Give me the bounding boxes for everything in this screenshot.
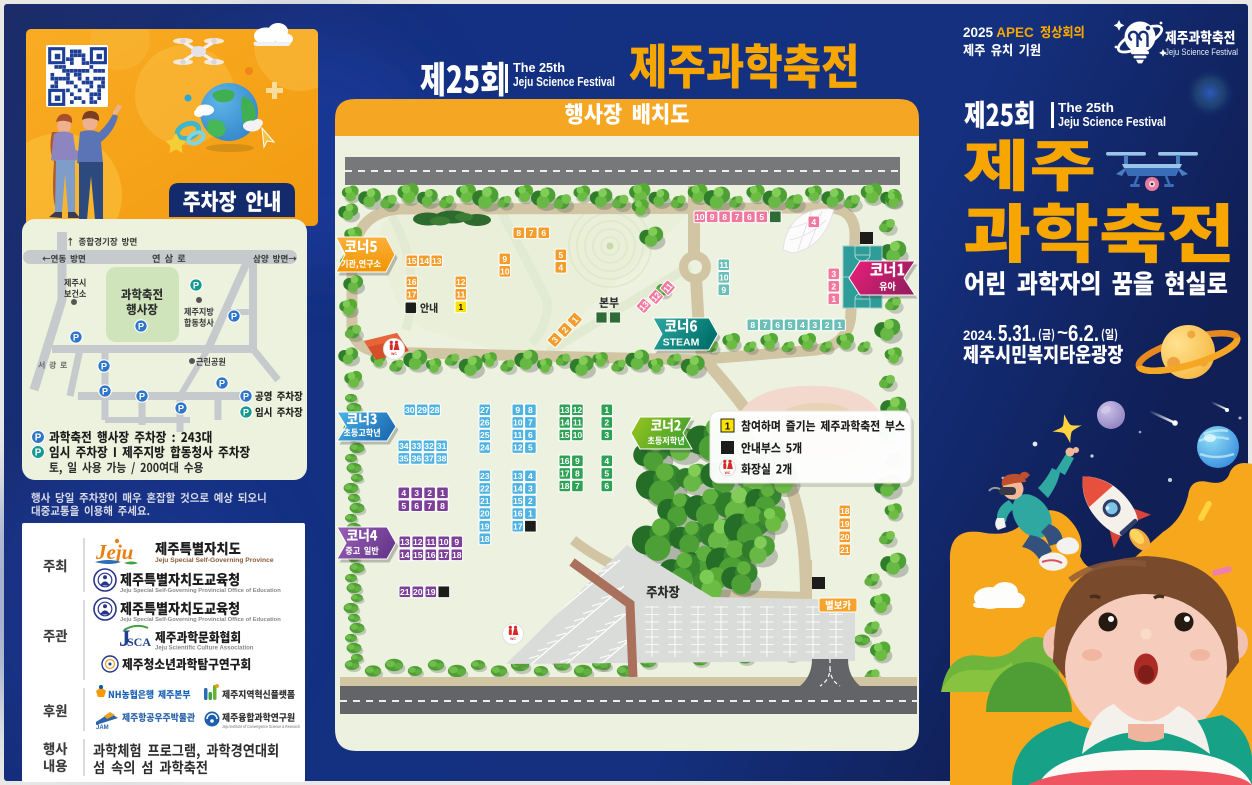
svg-text:P: P (102, 386, 108, 396)
svg-text:Jeju Special Self-Governing Pr: Jeju Special Self-Governing Province (155, 557, 274, 564)
svg-text:4: 4 (558, 262, 563, 272)
svg-text:1: 1 (528, 509, 533, 519)
svg-text:8: 8 (575, 469, 580, 479)
svg-text:P: P (35, 448, 42, 459)
svg-text:16: 16 (513, 509, 523, 519)
svg-text:8: 8 (440, 501, 445, 511)
svg-text:13: 13 (400, 537, 410, 547)
svg-text:3: 3 (831, 269, 836, 279)
svg-text:21: 21 (400, 587, 410, 597)
svg-text:9: 9 (454, 537, 459, 547)
svg-text:2025 APEC: 2025 APEC (963, 25, 1034, 40)
svg-text:3: 3 (812, 320, 817, 330)
svg-text:The 25th: The 25th (513, 61, 565, 75)
svg-text:18: 18 (840, 506, 850, 516)
svg-text:11: 11 (573, 418, 582, 428)
svg-text:27: 27 (480, 405, 490, 415)
svg-text:Jeju Science Festival: Jeju Science Festival (513, 75, 615, 89)
svg-text:5: 5 (401, 501, 406, 511)
svg-text:19: 19 (480, 521, 490, 531)
svg-text:P: P (219, 378, 225, 388)
svg-text:2: 2 (604, 418, 609, 428)
svg-text:11: 11 (513, 430, 522, 440)
svg-text:Jeju Special Self-Governing Pr: Jeju Special Self-Governing Provincial O… (120, 617, 281, 623)
svg-text:25: 25 (480, 430, 490, 440)
svg-text:7: 7 (427, 501, 432, 511)
svg-text:15: 15 (413, 550, 423, 560)
svg-text:14: 14 (420, 256, 430, 266)
svg-text:6.2.: 6.2. (1068, 320, 1099, 346)
svg-text:Jeju Science Festival: Jeju Science Festival (1165, 47, 1238, 57)
svg-text:34: 34 (399, 441, 409, 451)
svg-text:5: 5 (759, 212, 764, 222)
svg-text:6: 6 (528, 430, 533, 440)
svg-text:3: 3 (528, 484, 533, 494)
svg-text:P: P (73, 332, 79, 342)
svg-text:P: P (139, 391, 145, 401)
svg-text:19: 19 (840, 519, 850, 529)
svg-text:19: 19 (426, 587, 436, 597)
svg-text:17: 17 (513, 521, 523, 531)
svg-text:2: 2 (831, 281, 836, 291)
svg-text:15: 15 (513, 496, 523, 506)
svg-text:9: 9 (710, 212, 715, 222)
svg-text:2: 2 (528, 496, 533, 506)
svg-text:1: 1 (440, 488, 445, 498)
svg-text:9: 9 (721, 285, 726, 295)
svg-text:P: P (178, 403, 184, 413)
svg-text:12: 12 (513, 443, 523, 453)
svg-text:9: 9 (515, 405, 520, 415)
svg-text:13: 13 (560, 405, 570, 415)
svg-text:8: 8 (516, 228, 521, 238)
svg-text:7: 7 (763, 320, 768, 330)
svg-text:6: 6 (747, 212, 752, 222)
svg-text:Jeju Science Festival: Jeju Science Festival (1058, 114, 1166, 129)
svg-text:24: 24 (480, 443, 490, 453)
svg-text:20: 20 (480, 509, 490, 519)
svg-text:5: 5 (604, 469, 609, 479)
svg-text:5.31.: 5.31. (998, 320, 1036, 346)
svg-text:21: 21 (840, 545, 850, 555)
svg-text:7: 7 (735, 212, 740, 222)
svg-text:4: 4 (811, 217, 816, 227)
svg-text:9: 9 (502, 254, 507, 264)
svg-text:32: 32 (424, 441, 434, 451)
svg-text:8: 8 (528, 405, 533, 415)
svg-text:14: 14 (400, 550, 410, 560)
svg-text:18: 18 (480, 534, 490, 544)
svg-text:2: 2 (825, 320, 830, 330)
svg-text:18: 18 (452, 550, 462, 560)
svg-text:1: 1 (604, 405, 609, 415)
svg-text:11: 11 (719, 260, 728, 270)
svg-text:23: 23 (480, 471, 490, 481)
svg-text:1: 1 (725, 422, 731, 433)
svg-text:WC: WC (510, 637, 516, 641)
svg-text:1: 1 (837, 320, 842, 330)
svg-text:5: 5 (528, 443, 533, 453)
svg-text:1: 1 (831, 294, 836, 304)
svg-text:11: 11 (456, 289, 465, 299)
svg-text:3: 3 (414, 488, 419, 498)
svg-text:15: 15 (407, 256, 417, 266)
svg-text:10: 10 (719, 272, 729, 282)
svg-text:35: 35 (399, 454, 409, 464)
svg-text:9: 9 (575, 456, 580, 466)
svg-text:P: P (138, 321, 144, 331)
svg-text:Jeju Scientific Culture Associ: Jeju Scientific Culture Association (155, 646, 254, 652)
svg-text:17: 17 (560, 469, 570, 479)
svg-text:10: 10 (513, 418, 523, 428)
svg-text:14: 14 (513, 484, 523, 494)
svg-text:6: 6 (775, 320, 780, 330)
svg-text:1: 1 (458, 302, 463, 312)
svg-text:7: 7 (529, 228, 534, 238)
svg-text:13: 13 (513, 471, 523, 481)
svg-text:WC: WC (391, 352, 397, 356)
svg-text:WC: WC (725, 471, 731, 475)
svg-text:3: 3 (604, 430, 609, 440)
svg-text:10: 10 (573, 430, 583, 440)
svg-text:STEAM: STEAM (663, 337, 700, 349)
svg-text:15: 15 (560, 430, 570, 440)
svg-text:11: 11 (426, 537, 435, 547)
svg-text:5: 5 (558, 250, 563, 260)
svg-text:13: 13 (432, 256, 442, 266)
svg-text:17: 17 (439, 550, 449, 560)
svg-text:20: 20 (413, 587, 423, 597)
svg-text:6: 6 (604, 481, 609, 491)
svg-text:~: ~ (1057, 323, 1068, 344)
svg-text:12: 12 (456, 277, 466, 287)
svg-text:The 25th: The 25th (1058, 100, 1114, 115)
svg-text:12: 12 (413, 537, 423, 547)
svg-text:7: 7 (528, 418, 533, 428)
svg-text:6: 6 (541, 228, 546, 238)
svg-text:22: 22 (480, 484, 490, 494)
svg-text:30: 30 (405, 405, 415, 415)
svg-text:29: 29 (417, 405, 427, 415)
svg-text:16: 16 (426, 550, 436, 560)
svg-text:16: 16 (560, 456, 570, 466)
svg-text:31: 31 (437, 441, 447, 451)
svg-text:4: 4 (800, 320, 805, 330)
svg-text:37: 37 (424, 454, 434, 464)
svg-text:5: 5 (788, 320, 793, 330)
svg-text:17: 17 (407, 289, 417, 299)
svg-text:7: 7 (575, 481, 580, 491)
svg-text:10: 10 (439, 537, 449, 547)
svg-text:P: P (101, 361, 107, 371)
svg-text:8: 8 (750, 320, 755, 330)
svg-text:4: 4 (604, 456, 609, 466)
svg-text:38: 38 (437, 454, 447, 464)
svg-text:36: 36 (412, 454, 422, 464)
svg-text:P: P (35, 433, 42, 444)
svg-text:2024.: 2024. (963, 327, 996, 343)
svg-text:12: 12 (573, 405, 583, 415)
svg-text:16: 16 (407, 277, 417, 287)
svg-text:P: P (193, 280, 199, 290)
svg-text:26: 26 (480, 418, 490, 428)
svg-text:33: 33 (412, 441, 422, 451)
svg-text:P: P (243, 391, 249, 401)
svg-text:Jeju Institute of Convergence: Jeju Institute of Convergence Science & … (222, 724, 300, 729)
svg-text:Jeju Special Self-Governing Pr: Jeju Special Self-Governing Provincial O… (120, 588, 281, 594)
svg-text:14: 14 (560, 418, 570, 428)
svg-text:P: P (231, 311, 237, 321)
svg-text:4: 4 (528, 471, 533, 481)
svg-text:JAM: JAM (96, 725, 109, 731)
svg-text:10: 10 (500, 266, 510, 276)
svg-text:20: 20 (840, 532, 850, 542)
svg-text:SCA: SCA (127, 635, 151, 649)
svg-text:21: 21 (480, 496, 490, 506)
svg-text:8: 8 (722, 212, 727, 222)
svg-text:18: 18 (560, 481, 570, 491)
svg-text:4: 4 (401, 488, 406, 498)
svg-text:28: 28 (430, 405, 440, 415)
svg-text:2: 2 (427, 488, 432, 498)
svg-text:10: 10 (695, 212, 705, 222)
svg-text:6: 6 (414, 501, 419, 511)
svg-text:P: P (243, 407, 249, 417)
